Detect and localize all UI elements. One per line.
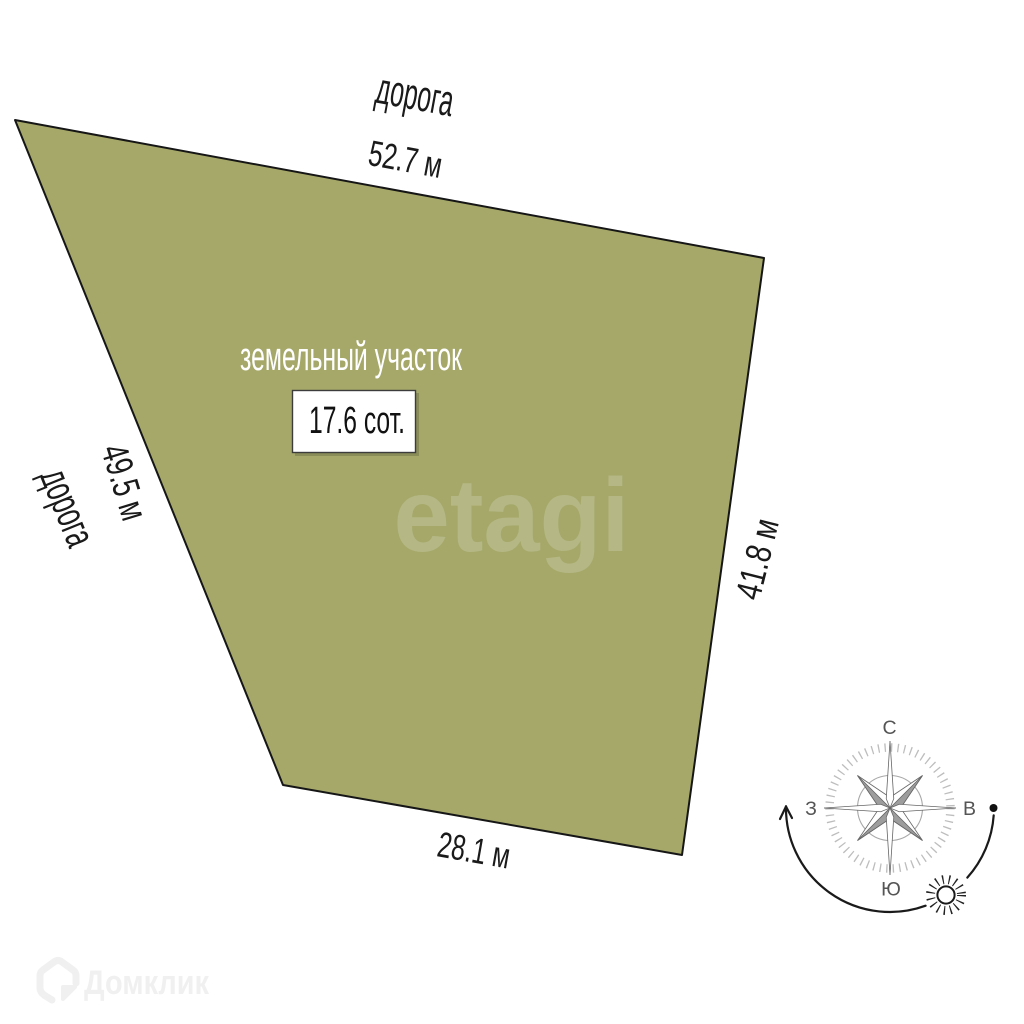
svg-text:etagi: etagi bbox=[394, 458, 630, 574]
svg-text:49.5 м: 49.5 м bbox=[92, 440, 155, 526]
svg-text:дорога: дорога bbox=[372, 64, 458, 126]
svg-text:17.6 сот.: 17.6 сот. bbox=[309, 400, 405, 442]
svg-text:В: В bbox=[963, 798, 976, 820]
svg-text:земельный участок: земельный участок bbox=[240, 335, 462, 379]
svg-text:52.7 м: 52.7 м bbox=[365, 132, 445, 186]
svg-text:Ю: Ю bbox=[881, 879, 901, 901]
svg-text:Домклик: Домклик bbox=[84, 964, 210, 1002]
svg-text:дорога: дорога bbox=[31, 461, 105, 553]
svg-text:28.1 м: 28.1 м bbox=[434, 823, 513, 876]
svg-text:41.8 м: 41.8 м bbox=[727, 514, 787, 603]
svg-text:З: З bbox=[805, 798, 817, 820]
svg-text:С: С bbox=[882, 717, 896, 739]
